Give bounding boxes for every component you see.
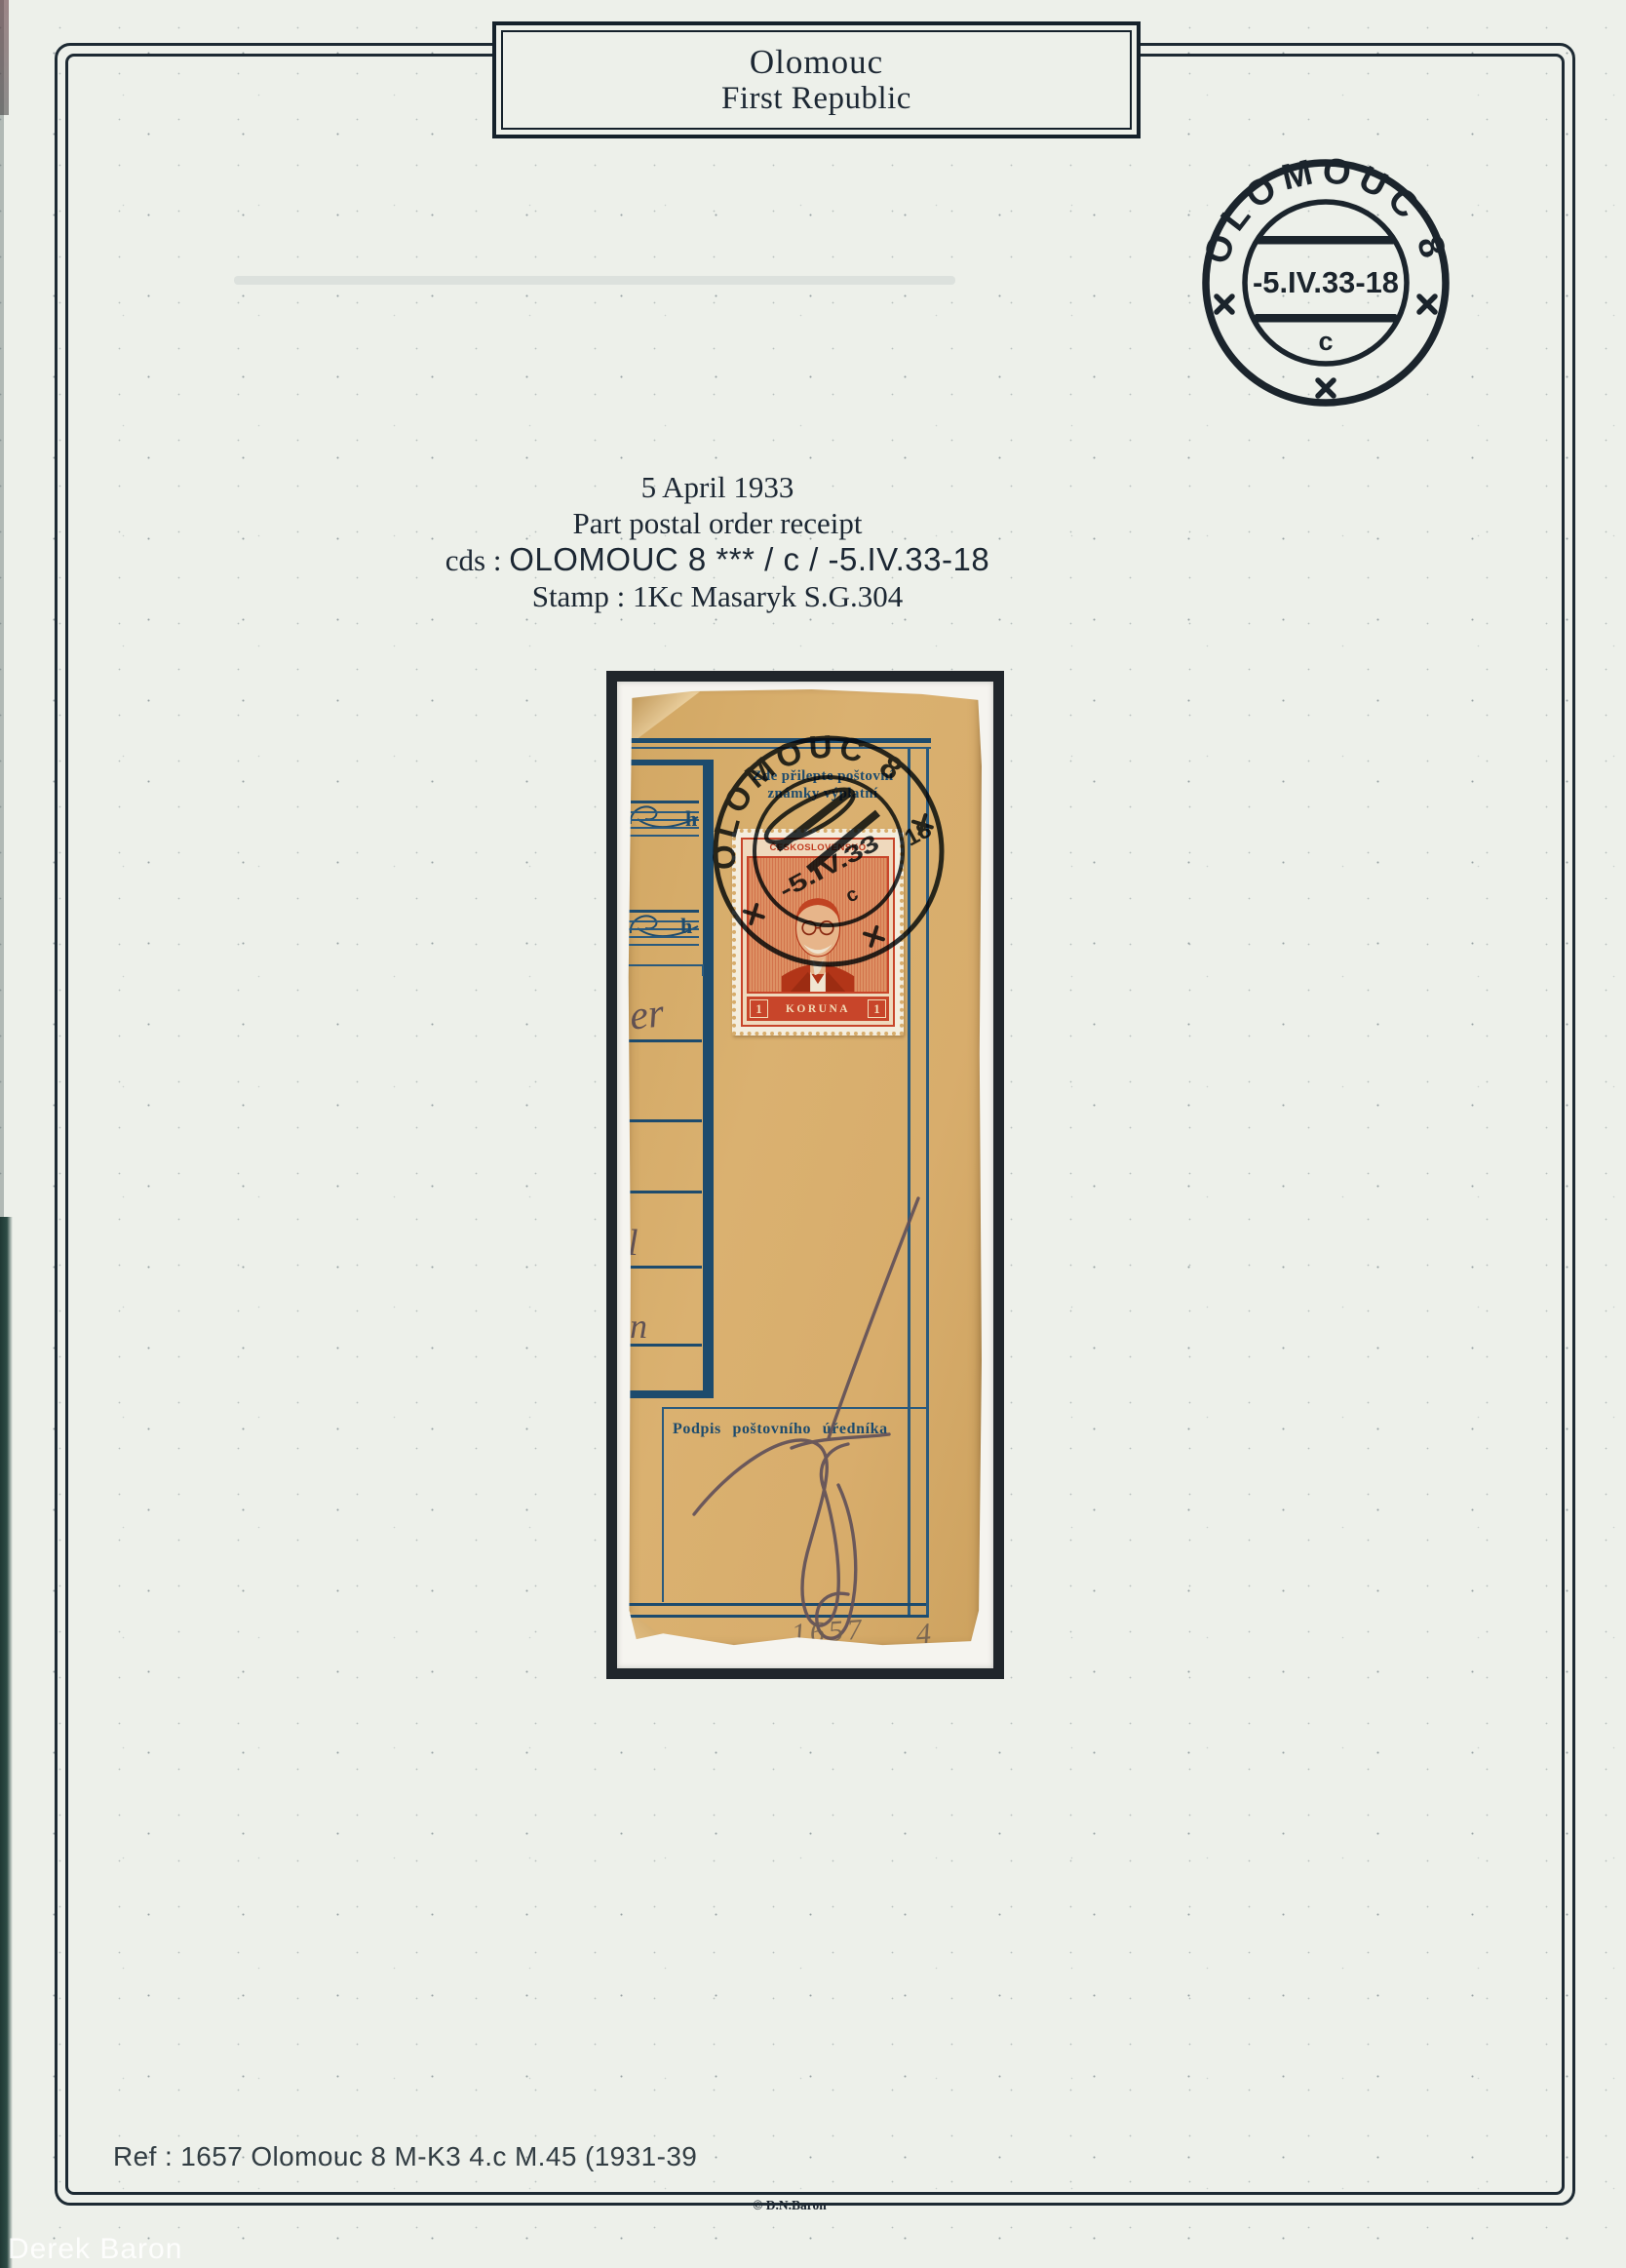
description-item: Part postal order receipt bbox=[390, 506, 1045, 542]
scan-watermark: Derek Baron bbox=[8, 2233, 182, 2266]
cds-star-left-icon bbox=[1217, 296, 1232, 312]
title-box: Olomouc First Republic bbox=[492, 21, 1141, 138]
album-page: Olomouc First Republic OLOMOUC 8 -5.IV.3… bbox=[0, 0, 1626, 2268]
scan-edge-band-top bbox=[0, 0, 9, 115]
signature-scrawl bbox=[675, 1193, 944, 1651]
postmark-star-bottom-icon bbox=[865, 927, 883, 946]
signature-box-left-rule bbox=[662, 1407, 664, 1602]
postmark-star-left-icon bbox=[745, 905, 763, 923]
pencil-annotation-number: 1657 bbox=[791, 1613, 867, 1652]
receipt-paper: h h Zde přilepte poštovní bbox=[628, 689, 982, 1649]
rule-line bbox=[628, 910, 699, 913]
stamp-currency-label: KORUNA bbox=[786, 1003, 850, 1015]
stamp-value-right: 1 bbox=[868, 999, 886, 1018]
description-cds-value: OLOMOUC 8 *** / c / -5.IV.33-18 bbox=[509, 541, 989, 577]
fee-unit-label-2: h bbox=[680, 914, 692, 939]
stamp-value-left: 1 bbox=[750, 999, 768, 1018]
postmark-index-letter: c bbox=[842, 883, 862, 908]
receipt-postmark: OLOMOUC 8 -5.IV.33 18 c bbox=[707, 729, 950, 973]
description-stamp: Stamp : 1Kc Masaryk S.G.304 bbox=[390, 579, 1045, 615]
cds-illustration: OLOMOUC 8 -5.IV.33-18 c bbox=[1195, 152, 1456, 413]
fee-unit-label-1: h bbox=[685, 806, 697, 832]
description-block: 5 April 1933 Part postal order receipt c… bbox=[390, 470, 1045, 615]
description-date: 5 April 1933 bbox=[390, 470, 1045, 506]
rule-line bbox=[628, 801, 699, 803]
cds-index-letter: c bbox=[1318, 327, 1333, 356]
description-cds-prefix: cds : bbox=[445, 543, 509, 577]
cds-star-right-icon bbox=[1419, 296, 1435, 312]
fee-divider bbox=[628, 1039, 702, 1042]
handwriting-fragment: n bbox=[630, 1306, 647, 1347]
rule-line bbox=[628, 944, 699, 946]
fee-column-top-rule bbox=[628, 760, 714, 765]
handwriting-fragment: er bbox=[628, 990, 667, 1039]
pencil-annotation-plate: 4 bbox=[915, 1617, 936, 1652]
cds-star-bottom-icon bbox=[1318, 380, 1334, 396]
cds-bar-top bbox=[1257, 236, 1395, 245]
footer-copyright: © D.N.Baron bbox=[682, 2198, 897, 2213]
exhibit-frame: h h Zde přilepte poštovní bbox=[606, 671, 1004, 1679]
fee-divider-hooked bbox=[628, 964, 704, 966]
cds-date-text: -5.IV.33-18 bbox=[1253, 265, 1399, 299]
page-title-line1: Olomouc bbox=[750, 43, 883, 81]
page-title-line2: First Republic bbox=[721, 81, 911, 117]
handwriting-fragment: l bbox=[628, 1222, 639, 1265]
scan-edge-band-bottom bbox=[0, 1217, 13, 2268]
rule-line bbox=[628, 835, 699, 837]
description-cds-line: cds : OLOMOUC 8 *** / c / -5.IV.33-18 bbox=[390, 541, 1045, 579]
footer-reference: Ref : 1657 Olomouc 8 M-K3 4.c M.45 (1931… bbox=[113, 2141, 697, 2172]
fee-divider bbox=[628, 1119, 702, 1122]
stamp-value-band: 1 KORUNA 1 bbox=[747, 997, 889, 1021]
cds-bar-bottom bbox=[1255, 314, 1397, 323]
cds-town-text: OLOMOUC 8 bbox=[1196, 152, 1455, 269]
fee-divider-hook bbox=[702, 964, 704, 976]
title-box-inner-border: Olomouc First Republic bbox=[501, 30, 1132, 130]
